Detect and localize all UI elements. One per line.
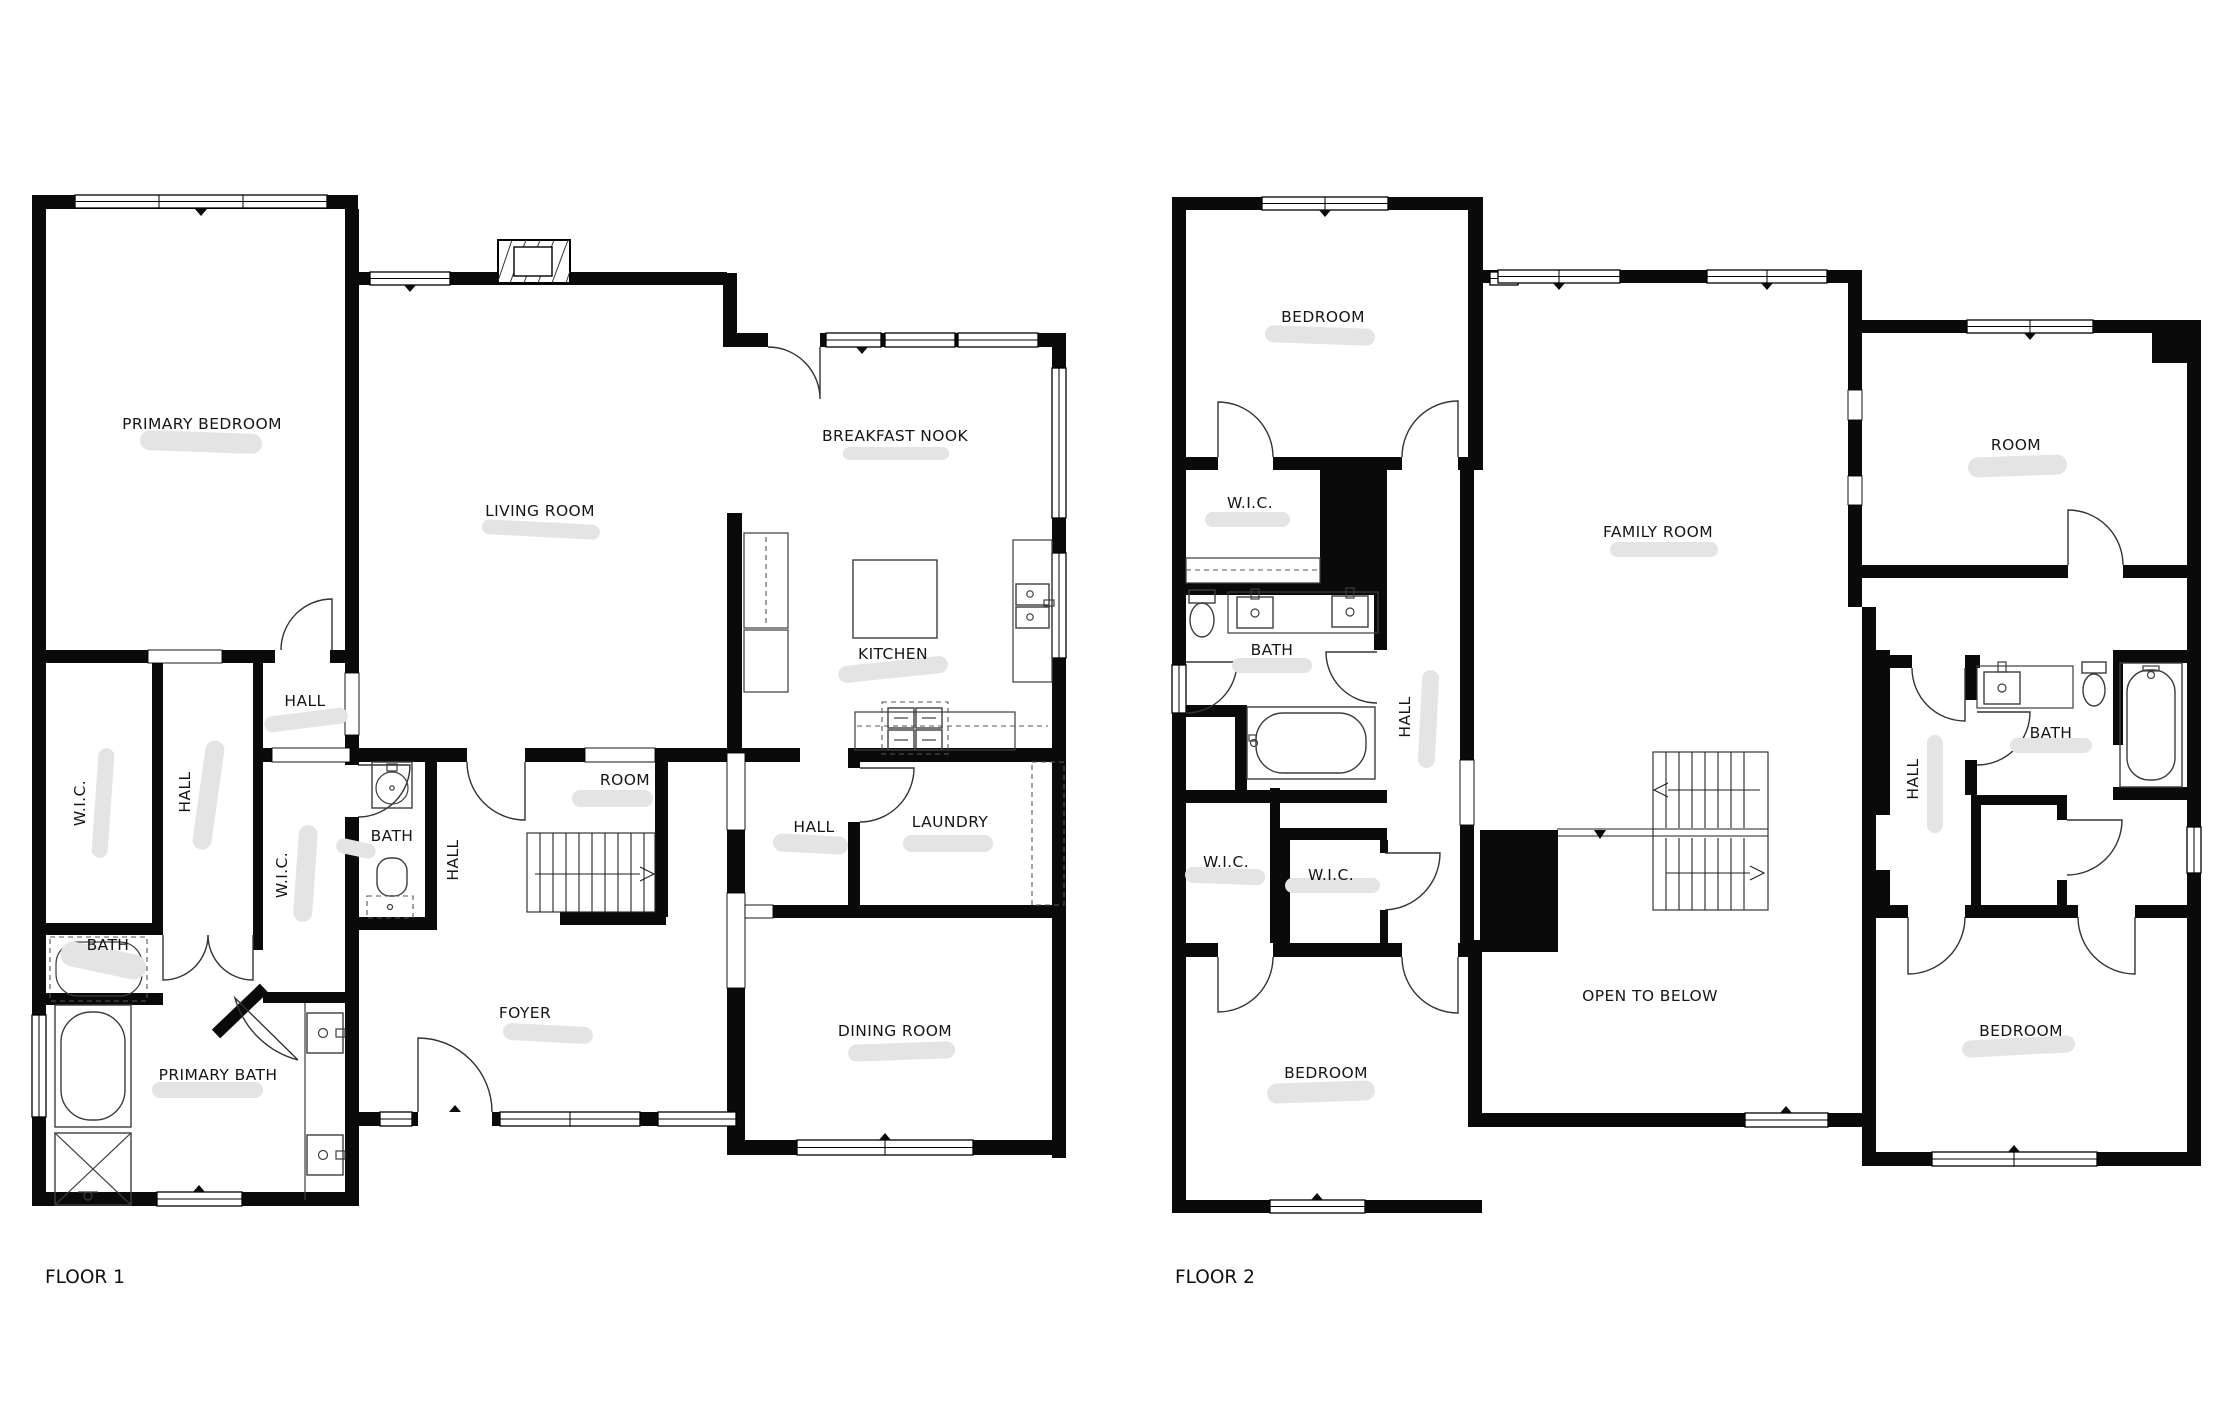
room-label-bath-small: BATH — [87, 936, 130, 954]
room-label-bedroom-tl: BEDROOM — [1281, 308, 1365, 326]
room-label-family-room: FAMILY ROOM — [1603, 523, 1713, 541]
door-arc — [2068, 510, 2123, 565]
room-label-foyer: FOYER — [499, 1004, 551, 1022]
redacted-dimension — [482, 519, 601, 540]
window — [1498, 270, 1620, 283]
kitchen-sink-icon — [1013, 540, 1054, 682]
door-arc — [1912, 668, 1965, 721]
kitchen-island-icon — [853, 560, 937, 638]
window — [32, 1015, 46, 1117]
room-label-wic-left: W.I.C. — [71, 780, 89, 826]
redacted-dimension — [1265, 325, 1376, 346]
redacted-dimension — [140, 430, 263, 454]
room-label-hall-left: HALL — [1396, 696, 1414, 737]
door-arc — [418, 1038, 492, 1112]
window — [1745, 1113, 1828, 1127]
floor1-cased-openings — [148, 650, 773, 988]
window — [157, 1192, 242, 1206]
redacted-dimension — [1927, 735, 1943, 833]
door-arc — [1218, 402, 1273, 457]
window — [658, 1112, 736, 1126]
room-label-kitchen: KITCHEN — [858, 645, 928, 663]
room-label-breakfast-nook: BREAKFAST NOOK — [822, 427, 968, 445]
door-arc — [2067, 820, 2122, 875]
kitchen-cabinets-icon — [744, 533, 1048, 726]
door-arc — [1402, 957, 1458, 1013]
door-arc — [860, 768, 914, 822]
room-label-dining-room: DINING ROOM — [838, 1022, 952, 1040]
floor1-fixtures — [50, 533, 1064, 1205]
door-arc — [235, 998, 298, 1060]
window — [958, 333, 1038, 347]
vanity-sink-icon — [1977, 662, 2073, 708]
room-label-hall-stairs: HALL — [444, 839, 462, 880]
floor2-title: FLOOR 2 — [1175, 1267, 1255, 1288]
redacted-dimension — [843, 447, 949, 460]
fireplace-icon — [498, 240, 570, 283]
floorplan-canvas: PRIMARY BEDROOM LIVING ROOM BREAKFAST NO… — [0, 0, 2235, 1406]
window — [500, 1112, 640, 1126]
door-arc — [1218, 957, 1273, 1012]
room-label-primary-bath: PRIMARY BATH — [159, 1066, 278, 1084]
vanity-sink-icon — [305, 1003, 345, 1200]
floor1-stairs — [527, 833, 655, 912]
door-arc — [281, 599, 332, 650]
room-label-wic-tl: W.I.C. — [1227, 494, 1273, 512]
floor2-stairs — [1557, 752, 1768, 910]
bathtub-icon — [1247, 707, 1375, 779]
room-label-bedroom-bl: BEDROOM — [1284, 1064, 1368, 1082]
redacted-dimension — [91, 748, 115, 859]
redacted-dimension — [572, 790, 653, 807]
window — [1172, 665, 1186, 713]
window — [75, 195, 327, 208]
floor2-labels: BEDROOM W.I.C. FAMILY ROOM ROOM BATH HAL… — [1203, 308, 2072, 1082]
room-label-room-tr: ROOM — [1991, 436, 2041, 454]
room-label-hall-right: HALL — [1904, 758, 1922, 799]
window — [885, 333, 955, 347]
door-arc — [1402, 401, 1458, 457]
floor1-title: FLOOR 1 — [45, 1267, 125, 1288]
redacted-dimension — [503, 1023, 594, 1045]
stove-icon — [855, 702, 1015, 754]
room-label-wic-4: W.I.C. — [1308, 866, 1354, 884]
redacted-dimension — [263, 707, 348, 733]
toilet-icon — [1189, 590, 1215, 637]
redacted-dimension — [1267, 1080, 1376, 1104]
window — [370, 272, 450, 285]
redacted-dimension — [293, 824, 319, 922]
redacted-dimension — [1610, 542, 1718, 557]
door-arc — [358, 765, 410, 817]
window — [1270, 1200, 1365, 1213]
room-label-hall-upper: HALL — [284, 692, 325, 710]
door-arc — [2078, 917, 2135, 974]
room-label-open-to-below: OPEN TO BELOW — [1582, 987, 1718, 1005]
room-label-living-room: LIVING ROOM — [485, 502, 595, 520]
redacted-dimension — [848, 1041, 956, 1062]
room-label-wic-3: W.I.C. — [1203, 853, 1249, 871]
bathtub-icon — [2120, 663, 2182, 787]
room-label-half-bath: BATH — [371, 827, 414, 845]
toilet-icon — [367, 858, 413, 918]
toilet-icon — [2082, 662, 2106, 706]
room-label-bath-right: BATH — [2030, 724, 2073, 742]
floor2-windows — [1172, 197, 2201, 1213]
redacted-dimension — [191, 739, 225, 851]
window — [797, 1140, 973, 1155]
redacted-dimension — [903, 835, 993, 852]
redacted-dimension — [1417, 670, 1439, 769]
redacted-dimension — [773, 833, 849, 855]
room-label-wic-center: W.I.C. — [273, 852, 291, 898]
floorplan-svg: PRIMARY BEDROOM LIVING ROOM BREAKFAST NO… — [0, 0, 2235, 1406]
door-arc — [768, 347, 820, 399]
window — [1967, 320, 2093, 333]
floor2-cased-openings — [1460, 390, 1862, 825]
bathtub-icon — [55, 1005, 131, 1127]
room-label-room: ROOM — [600, 771, 650, 789]
redacted-dimension — [1232, 658, 1312, 673]
room-label-hall-left: HALL — [176, 771, 194, 812]
window — [380, 1112, 412, 1126]
door-arc — [467, 762, 525, 820]
room-label-bath-left: BATH — [1251, 641, 1294, 659]
redacted-dimension — [1968, 454, 2068, 477]
door-arc — [1385, 853, 1440, 910]
door-arc — [163, 935, 208, 980]
floor2-walls — [1172, 197, 2201, 1213]
window — [1052, 368, 1066, 518]
redacted-dimension — [152, 1082, 263, 1098]
window — [2187, 827, 2201, 873]
room-label-laundry: LAUNDRY — [912, 813, 989, 831]
closet-shelf-icon — [1186, 558, 1320, 583]
redacted-dimension — [1205, 512, 1290, 527]
window — [1932, 1152, 2097, 1166]
window — [1262, 197, 1388, 210]
door-arc — [1908, 917, 1965, 974]
door-arc — [1326, 652, 1377, 703]
room-label-bedroom-br: BEDROOM — [1979, 1022, 2063, 1040]
floor2-plan: BEDROOM W.I.C. FAMILY ROOM ROOM BATH HAL… — [1172, 197, 2201, 1288]
room-label-primary-bedroom: PRIMARY BEDROOM — [122, 415, 282, 433]
room-label-hall-right: HALL — [793, 818, 834, 836]
window — [826, 333, 881, 347]
window — [1707, 270, 1827, 283]
floor1-plan: PRIMARY BEDROOM LIVING ROOM BREAKFAST NO… — [32, 195, 1066, 1288]
door-arc — [208, 935, 253, 980]
